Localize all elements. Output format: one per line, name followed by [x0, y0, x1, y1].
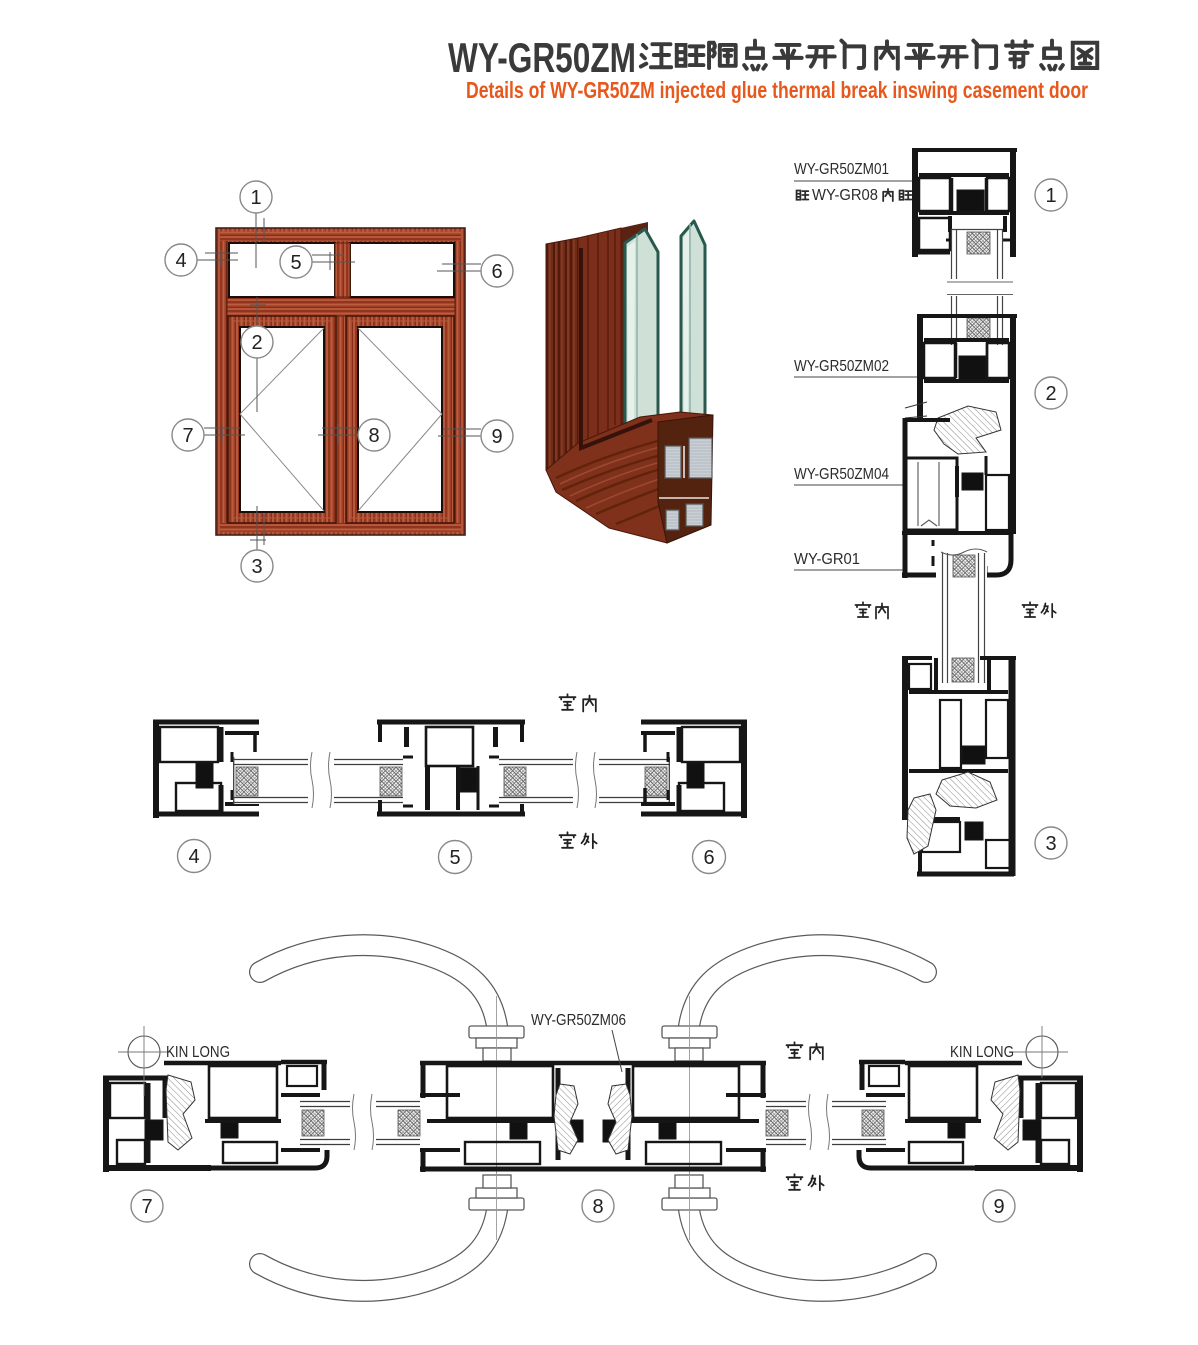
svg-text:7: 7 [141, 1196, 152, 1218]
svg-text:3: 3 [1045, 833, 1056, 855]
svg-text:KIN LONG: KIN LONG [950, 1044, 1014, 1061]
svg-text:3: 3 [251, 556, 262, 578]
svg-text:4: 4 [188, 846, 199, 868]
svg-text:WY-GR50ZM: WY-GR50ZM [448, 34, 636, 81]
svg-text:7: 7 [182, 425, 193, 447]
svg-text:8: 8 [368, 425, 379, 447]
svg-text:WY-GR08: WY-GR08 [812, 187, 878, 204]
svg-text:WY-GR50ZM01: WY-GR50ZM01 [794, 161, 889, 178]
svg-text:WY-GR50ZM06: WY-GR50ZM06 [531, 1012, 626, 1029]
svg-text:8: 8 [592, 1196, 603, 1218]
svg-text:6: 6 [491, 261, 502, 283]
svg-text:Details of WY-GR50ZM injected: Details of WY-GR50ZM injected glue therm… [466, 77, 1088, 103]
svg-text:WY-GR01: WY-GR01 [794, 551, 860, 568]
svg-text:2: 2 [1045, 383, 1056, 405]
svg-text:2: 2 [251, 332, 262, 354]
svg-text:6: 6 [703, 847, 714, 869]
svg-text:1: 1 [250, 187, 261, 209]
svg-text:4: 4 [175, 250, 186, 272]
svg-text:5: 5 [290, 252, 301, 274]
svg-text:9: 9 [993, 1196, 1004, 1218]
svg-text:KIN LONG: KIN LONG [166, 1044, 230, 1061]
svg-text:9: 9 [491, 426, 502, 448]
svg-text:1: 1 [1045, 185, 1056, 207]
svg-text:5: 5 [449, 847, 460, 869]
svg-text:WY-GR50ZM04: WY-GR50ZM04 [794, 466, 889, 483]
svg-text:WY-GR50ZM02: WY-GR50ZM02 [794, 358, 889, 375]
